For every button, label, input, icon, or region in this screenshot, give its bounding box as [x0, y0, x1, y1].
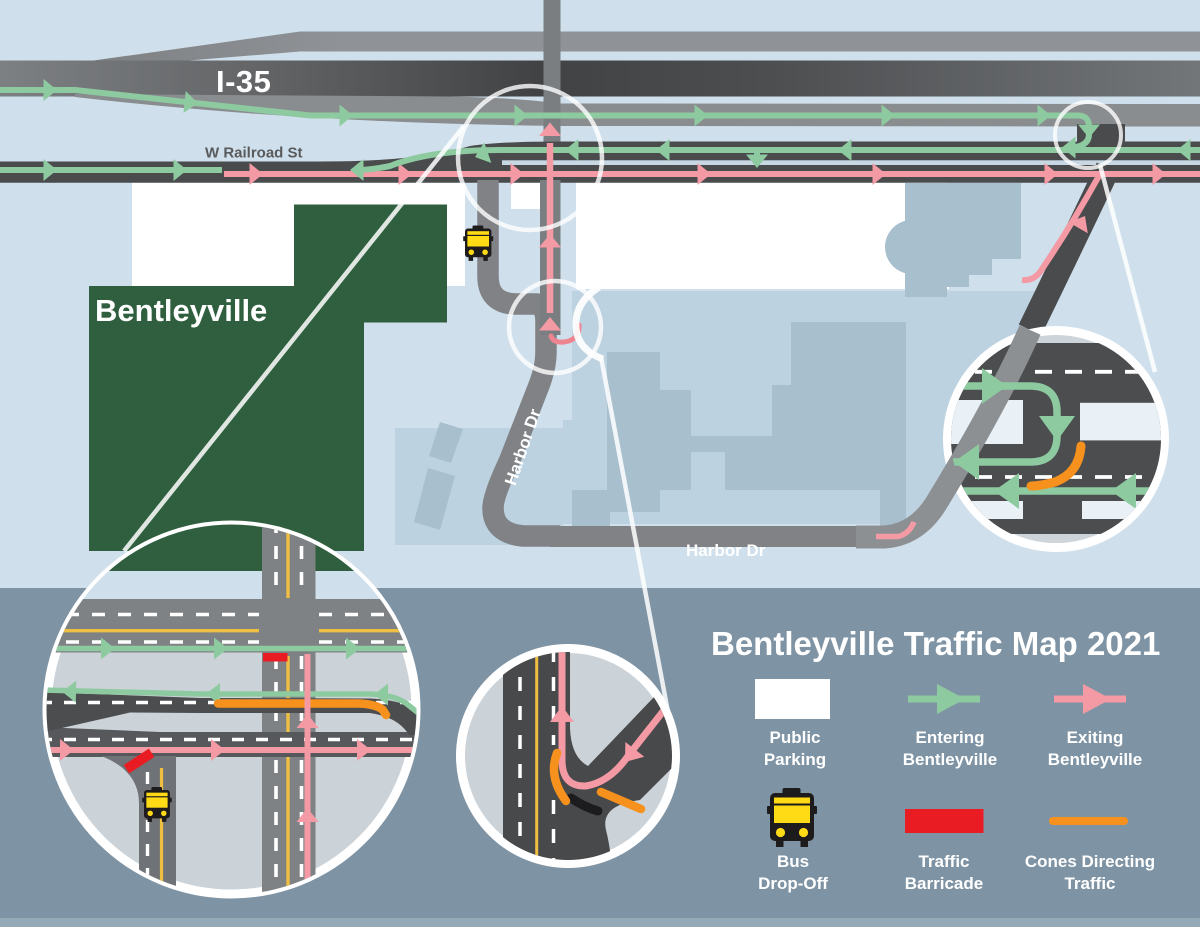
svg-text:Parking: Parking: [764, 750, 826, 769]
svg-text:Exiting: Exiting: [1067, 728, 1124, 747]
svg-text:Bentleyville: Bentleyville: [1048, 750, 1143, 769]
svg-text:Bus: Bus: [777, 852, 809, 871]
svg-text:Barricade: Barricade: [905, 874, 983, 893]
svg-text:Entering: Entering: [916, 728, 985, 747]
svg-text:Harbor Dr: Harbor Dr: [686, 541, 766, 560]
svg-text:Drop-Off: Drop-Off: [758, 874, 828, 893]
svg-text:Traffic: Traffic: [918, 852, 969, 871]
svg-text:Public: Public: [769, 728, 820, 747]
svg-text:Bentleyville Traffic Map 2021: Bentleyville Traffic Map 2021: [711, 625, 1160, 662]
svg-text:Cones Directing: Cones Directing: [1025, 852, 1155, 871]
svg-text:I-35: I-35: [216, 64, 271, 99]
svg-text:Bentleyville: Bentleyville: [903, 750, 998, 769]
svg-text:W Railroad St: W Railroad St: [205, 145, 303, 162]
svg-text:Bentleyville: Bentleyville: [95, 293, 267, 328]
svg-text:Traffic: Traffic: [1064, 874, 1115, 893]
